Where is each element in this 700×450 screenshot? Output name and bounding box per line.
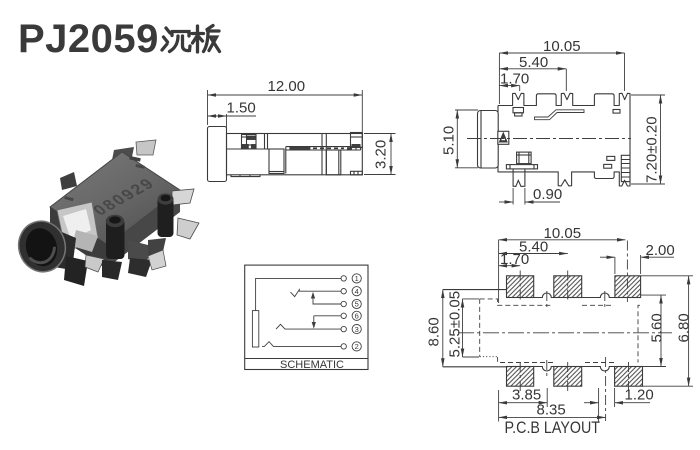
svg-text:3.20: 3.20 (373, 140, 390, 169)
svg-text:10.05: 10.05 (543, 38, 581, 55)
svg-text:0.90: 0.90 (533, 186, 562, 203)
svg-text:5.60: 5.60 (649, 313, 666, 342)
svg-text:1.70: 1.70 (500, 71, 529, 88)
svg-text:2.00: 2.00 (646, 242, 675, 259)
svg-text:PJ2059: PJ2059 (18, 17, 159, 61)
svg-text:1: 1 (355, 274, 359, 283)
svg-text:7.20±0.20: 7.20±0.20 (644, 116, 661, 183)
svg-text:SCHEMATIC: SCHEMATIC (280, 359, 344, 371)
svg-text:5.25±0.05: 5.25±0.05 (447, 291, 464, 358)
svg-text:5: 5 (355, 300, 359, 309)
svg-text:1.50: 1.50 (227, 100, 256, 117)
svg-text:4: 4 (355, 287, 359, 296)
svg-text:5.10: 5.10 (441, 126, 458, 155)
svg-text:8.35: 8.35 (537, 402, 566, 419)
svg-text:6.80: 6.80 (676, 313, 693, 342)
svg-text:P.C.B LAYOUT: P.C.B LAYOUT (505, 419, 601, 437)
svg-text:8.60: 8.60 (426, 317, 443, 346)
svg-text:3: 3 (355, 325, 359, 334)
svg-text:6: 6 (355, 312, 359, 321)
svg-text:1.20: 1.20 (625, 387, 654, 404)
svg-text:12.00: 12.00 (268, 78, 306, 95)
svg-text:2: 2 (355, 342, 359, 351)
